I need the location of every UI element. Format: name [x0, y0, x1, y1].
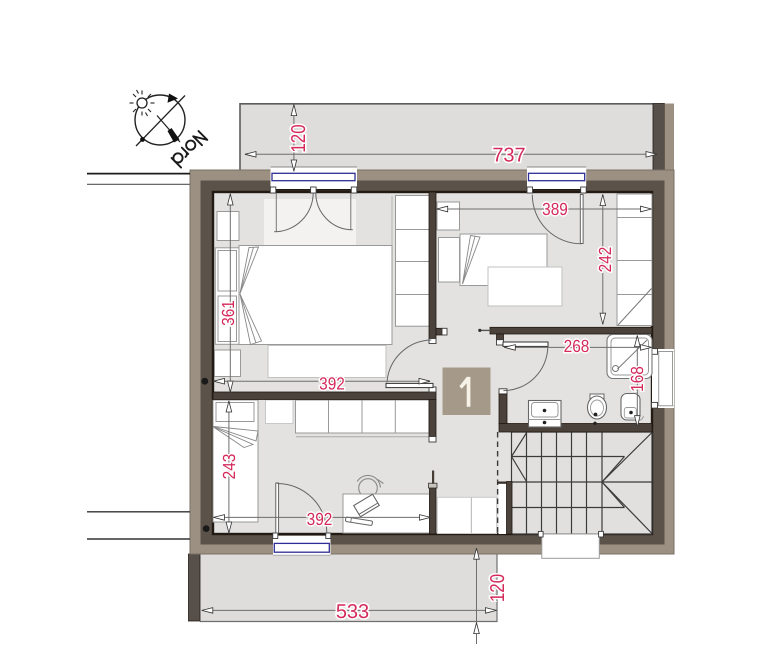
svg-text:268: 268 — [564, 336, 590, 356]
svg-text:533: 533 — [336, 601, 369, 623]
svg-text:120: 120 — [487, 574, 509, 602]
svg-text:243: 243 — [219, 454, 239, 480]
svg-text:392: 392 — [307, 509, 333, 529]
svg-text:392: 392 — [319, 374, 345, 394]
svg-text:120: 120 — [288, 124, 310, 152]
svg-text:737: 737 — [492, 144, 525, 166]
svg-text:168: 168 — [627, 366, 647, 392]
svg-text:242: 242 — [595, 247, 615, 273]
svg-text:389: 389 — [542, 199, 568, 219]
svg-text:361: 361 — [218, 300, 238, 326]
